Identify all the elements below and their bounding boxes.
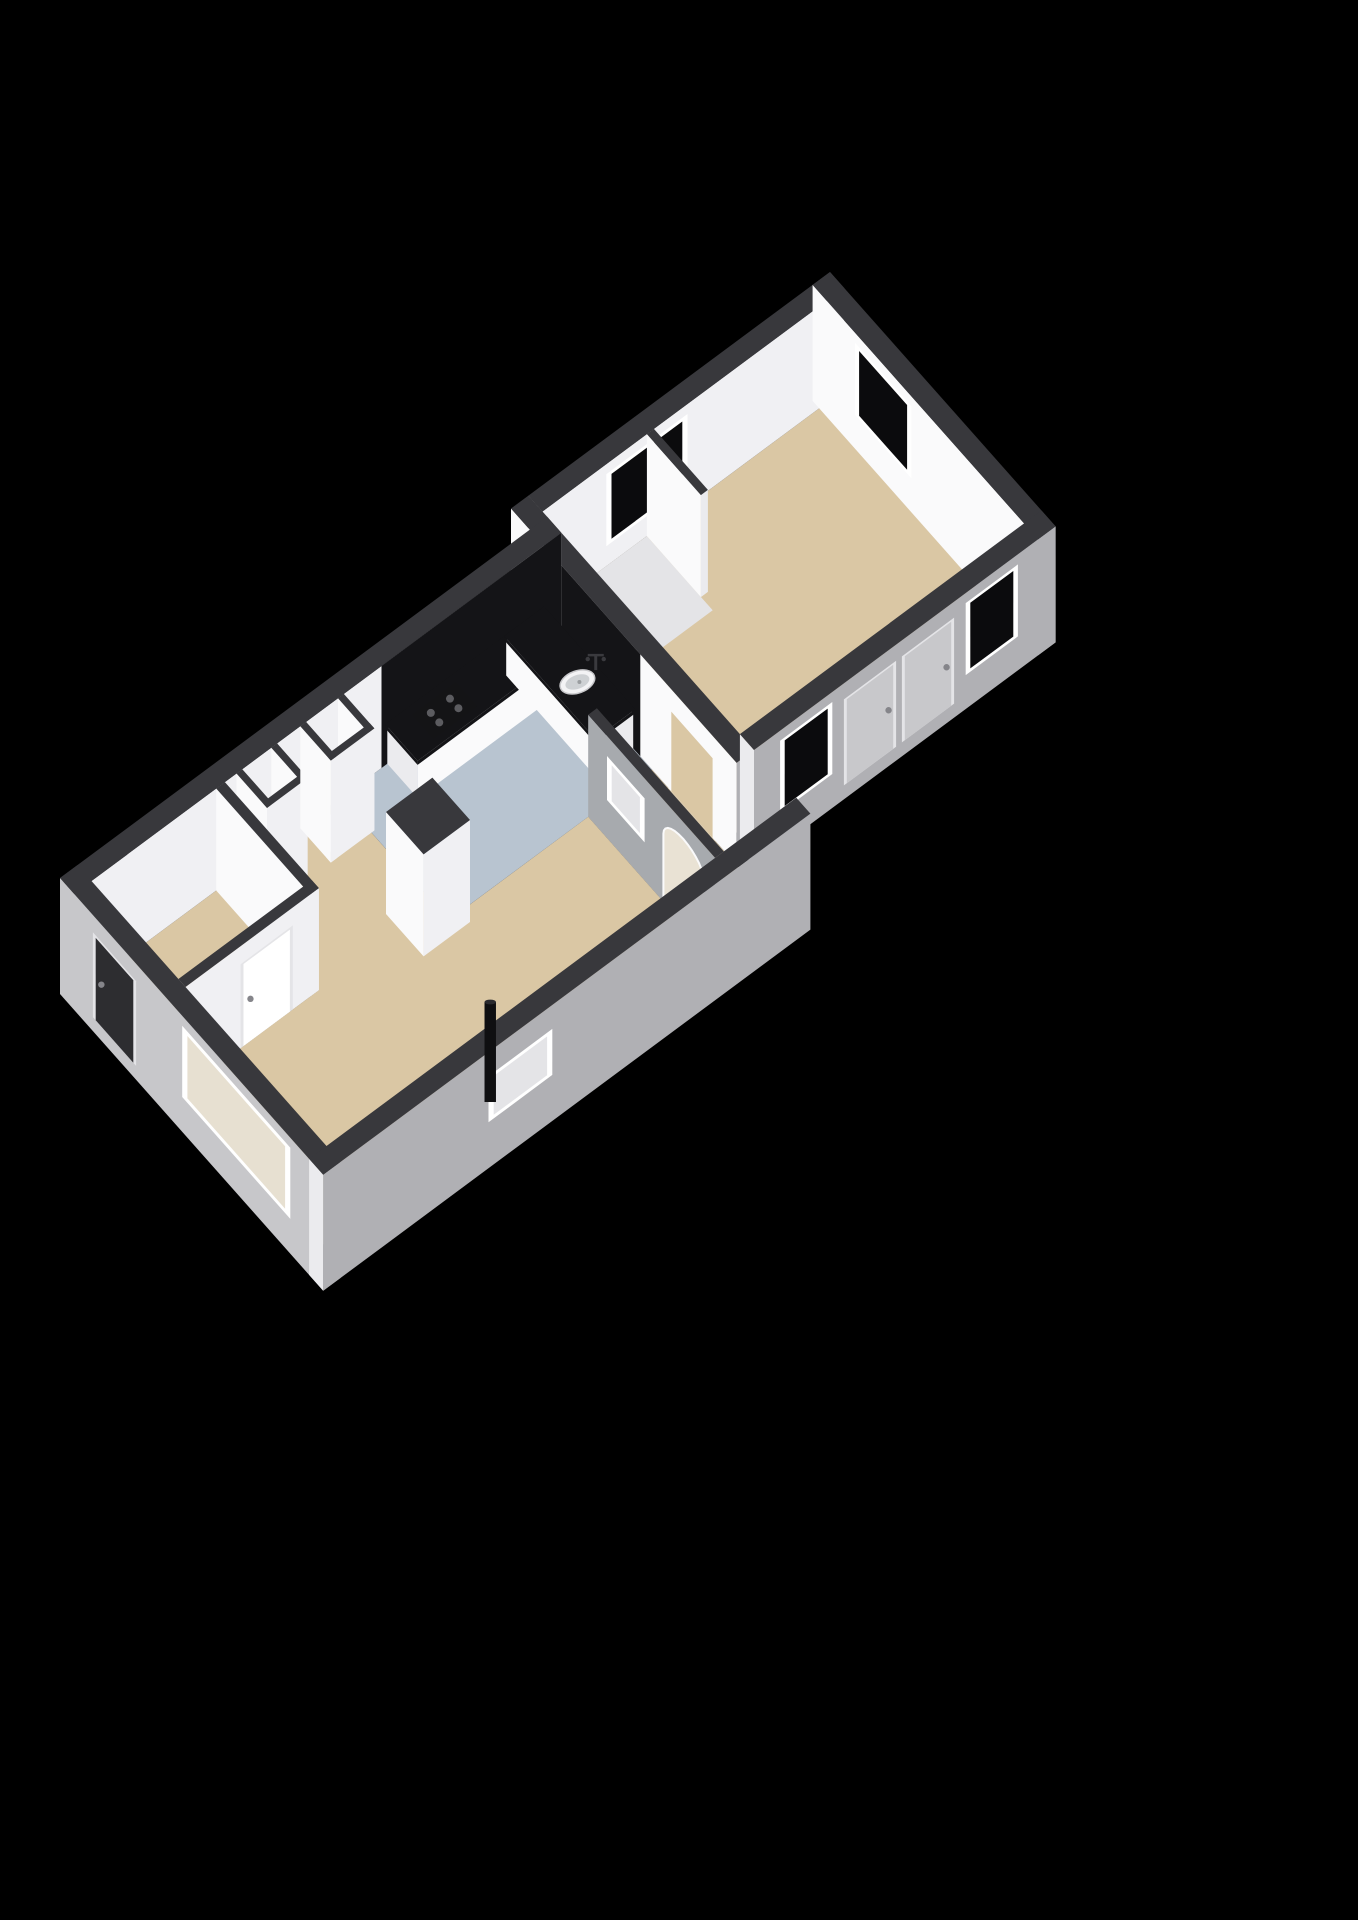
floorplan-3d-render: [0, 0, 1358, 1920]
stove-flue-pipe: [485, 1000, 496, 1102]
floorplan-canvas: [0, 0, 1358, 1920]
